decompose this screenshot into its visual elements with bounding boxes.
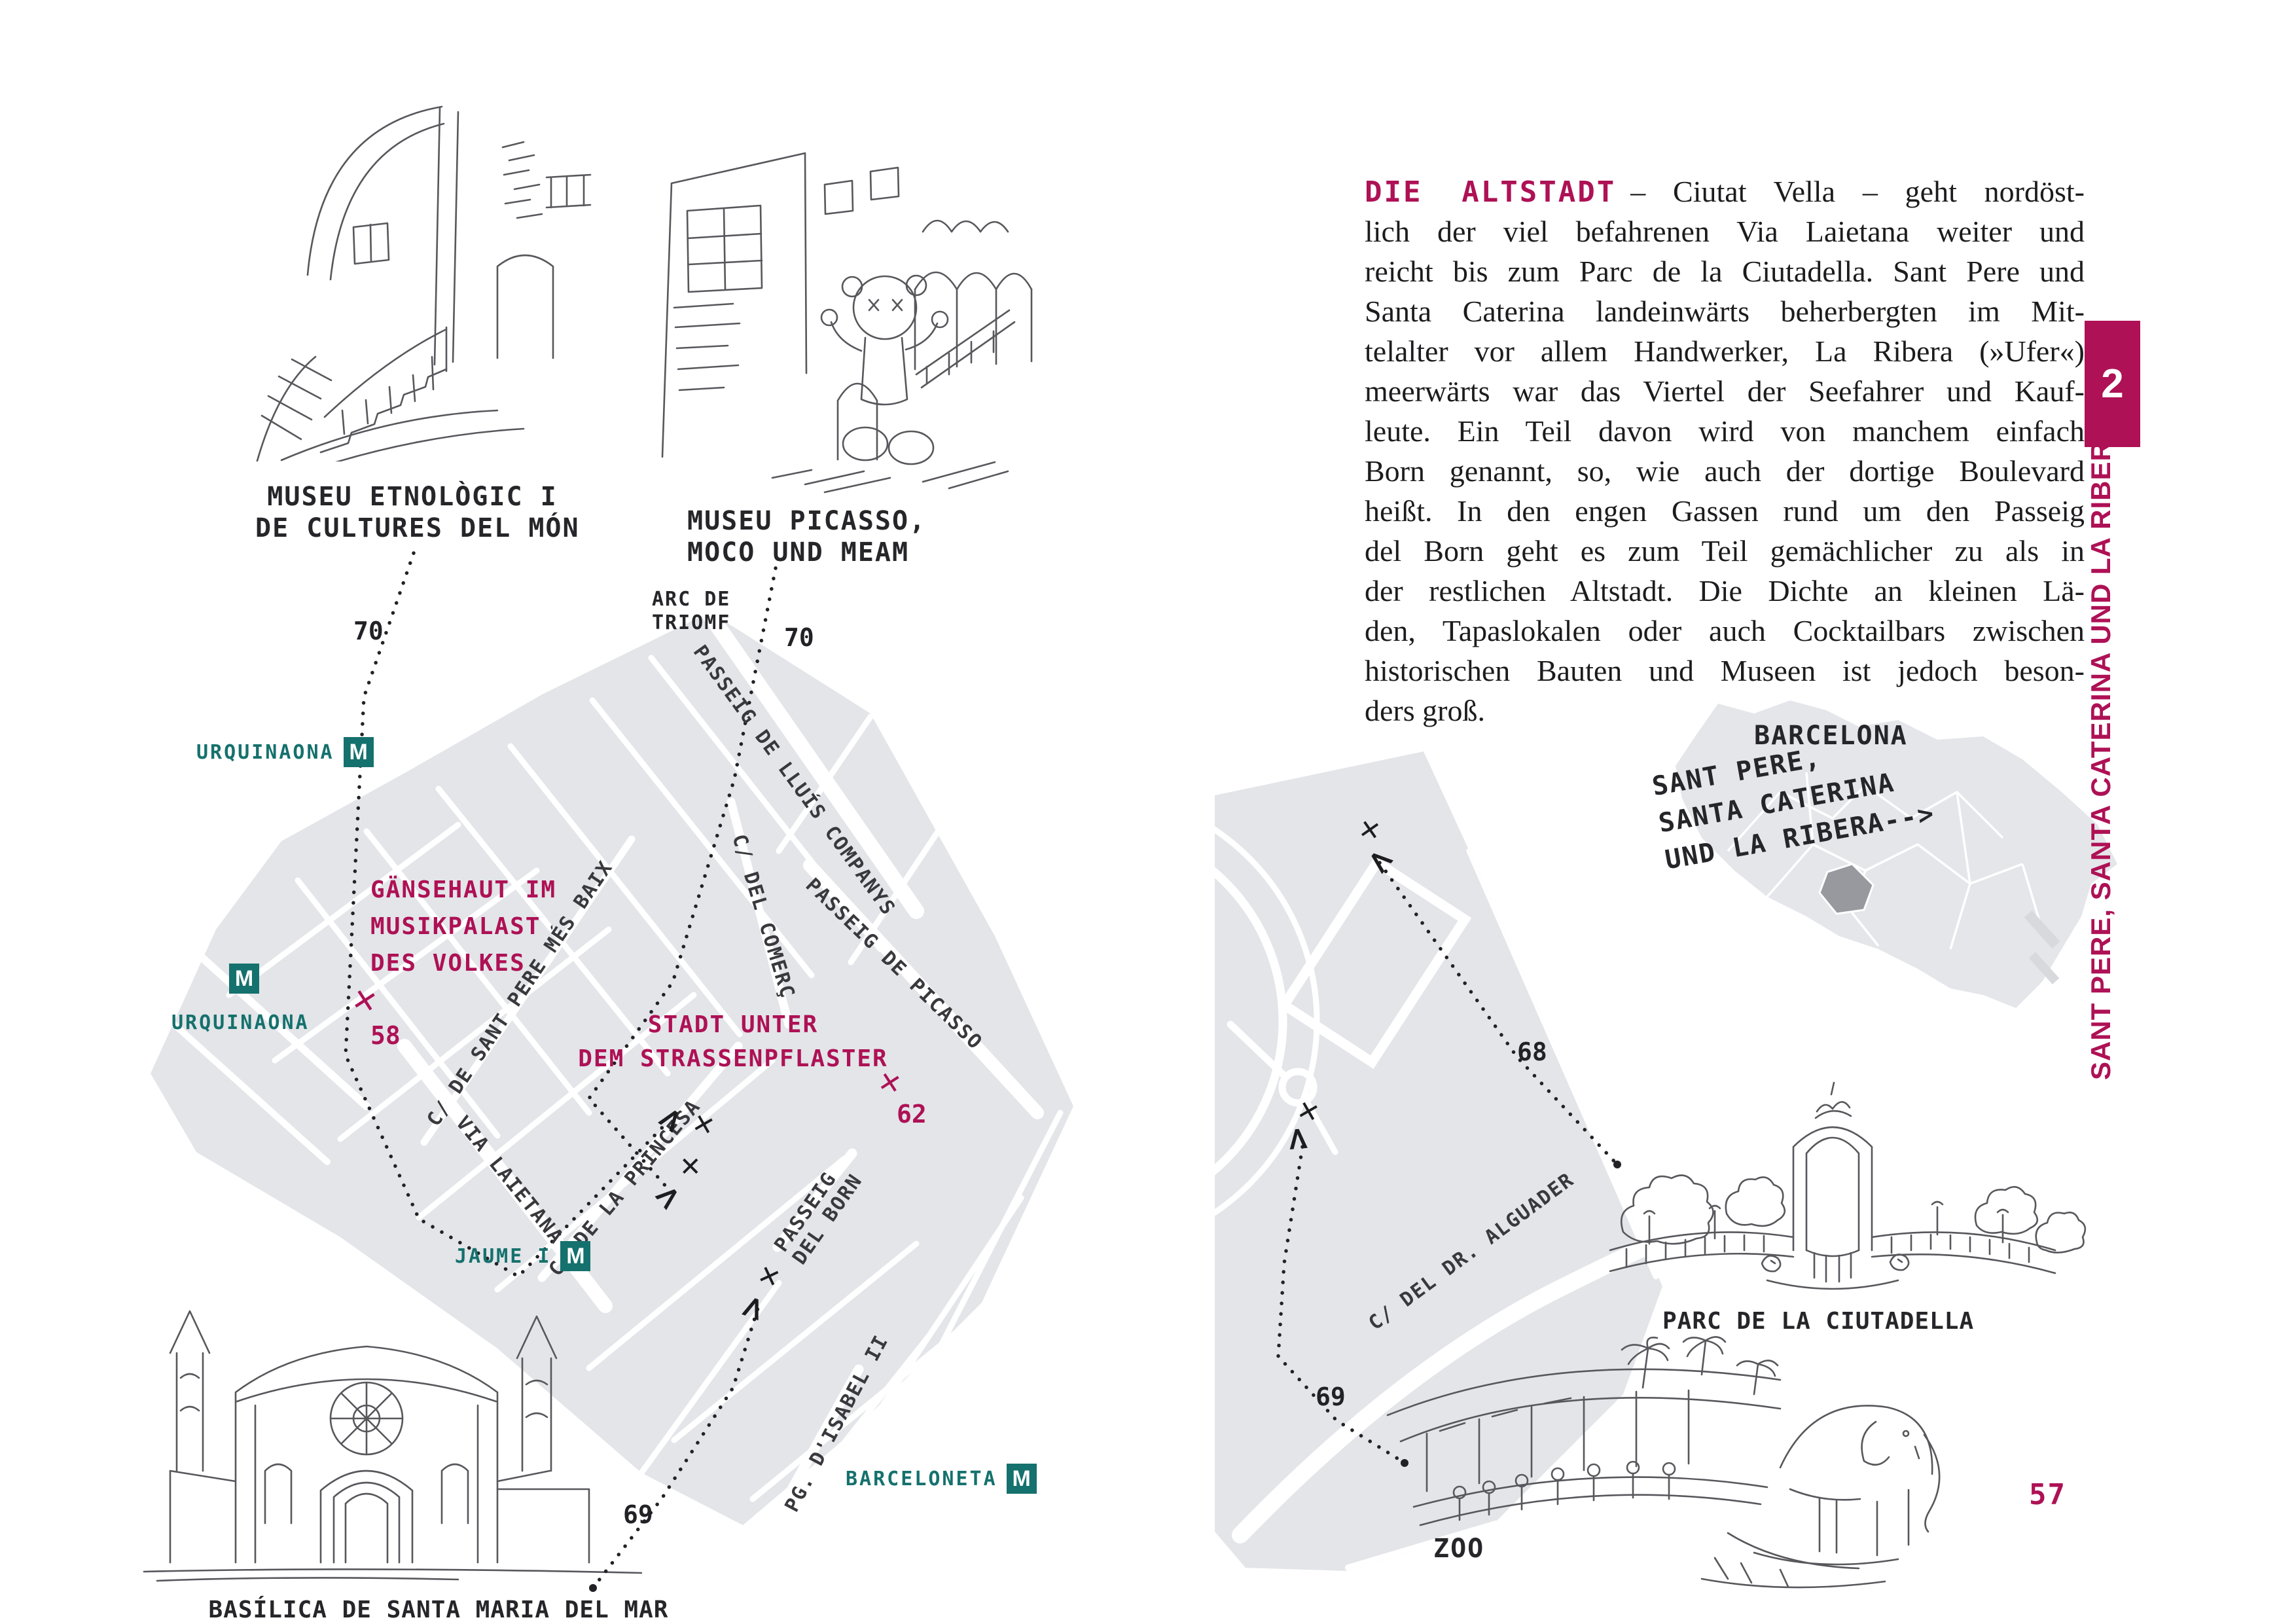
- label-arc-de-triomf: ARC DE TRIOMF: [652, 588, 730, 635]
- caption-line: DE CULTURES DEL MÓN: [255, 513, 569, 544]
- chapter-vertical-title: SANT PERE, SANTA CATERINA UND LA RIBERA: [2085, 452, 2117, 1080]
- caption-museu-etnologic: MUSEU ETNOLÒGIC I DE CULTURES DEL MÓN: [255, 481, 569, 544]
- poi-line: DEM STRASSENPFLASTER: [569, 1042, 897, 1076]
- poi-line: MUSIKPALAST: [370, 909, 556, 945]
- article-line: historischen Bauten und Museen ist jedoc…: [1365, 651, 2085, 691]
- caption-line: MUSEU PICASSO,: [687, 505, 903, 537]
- chapter-number: 2: [2101, 361, 2123, 407]
- caption-line: MOCO UND MEAM: [687, 537, 903, 568]
- article-line: DIE ALTSTADT– Ciutat Vella – geht nordös…: [1365, 171, 2085, 211]
- article-line: leute. Ein Teil davon wird von manchem e…: [1365, 411, 2085, 451]
- tour-number-zoo: 69: [1316, 1382, 1346, 1411]
- poi-strassenpflaster: STADT UNTER DEM STRASSENPFLASTER: [569, 1008, 897, 1076]
- article-line: der restlichen Altstadt. Die Dichte an k…: [1365, 571, 2085, 611]
- caption-basilica: BASÍLICA DE SANTA MARIA DEL MAR: [196, 1595, 681, 1624]
- caption-line: MUSEU ETNOLÒGIC I: [255, 481, 569, 513]
- caption-museu-picasso: MUSEU PICASSO, MOCO UND MEAM: [687, 505, 903, 568]
- metro-jaume-i: JAUME I M: [455, 1241, 590, 1271]
- article-line-text: – Ciutat Vella – geht nordöst-: [1630, 175, 2085, 208]
- metro-urquinaona-top: URQUINAONA M: [196, 737, 374, 767]
- metro-urquinaona-left: URQUINAONA: [171, 1011, 310, 1034]
- metro-barceloneta: BARCELONETA M: [846, 1464, 1037, 1494]
- label-line: ARC DE: [652, 588, 730, 611]
- article-line: del Born geht es zum Teil gemächlicher z…: [1365, 531, 2085, 571]
- article-line: reicht bis zum Parc de la Ciutadella. Sa…: [1365, 251, 2085, 291]
- label-line: TRIOMF: [652, 611, 730, 635]
- article-line: Born genannt, so, wie auch der dortige B…: [1365, 451, 2085, 491]
- metro-icon: M: [1007, 1464, 1037, 1494]
- page-number: 57: [2029, 1478, 2066, 1511]
- article-line: ders groß.: [1365, 691, 2085, 731]
- poi-line: GÄNSEHAUT IM: [370, 872, 556, 909]
- map-x-marker: ✕: [679, 1152, 702, 1182]
- article-lead-in: DIE ALTSTADT: [1365, 175, 1630, 209]
- caption-zoo: ZOO: [1433, 1533, 1484, 1564]
- article-line: den, Tapaslokalen oder auch Cocktailbars…: [1365, 611, 2085, 651]
- tour-number-basilica: 69: [623, 1500, 653, 1529]
- caption-parc-ciutadella: PARC DE LA CIUTADELLA: [1662, 1306, 1964, 1337]
- metro-icon: M: [344, 737, 374, 767]
- arrowhead-icon: >: [1278, 1125, 1316, 1154]
- poi-line: STADT UNTER: [569, 1008, 897, 1042]
- metro-station-name: JAUME I: [455, 1245, 551, 1268]
- article-line: Santa Caterina landeinwärts beherbergten…: [1365, 291, 2085, 331]
- article-line: telalter vor allem Handwerker, La Ribera…: [1365, 331, 2085, 371]
- tour-number-picasso: 70: [784, 623, 814, 652]
- tour-number-etnologic: 70: [353, 617, 384, 645]
- article-line: lich der viel befahrenen Via Laietana we…: [1365, 211, 2085, 251]
- metro-icon: M: [560, 1241, 590, 1271]
- article-line: heißt. In den engen Gassen rund um den P…: [1365, 491, 2085, 531]
- article-line: meerwärts war das Viertel der Seefahrer …: [1365, 371, 2085, 411]
- tour-number-musikpalast: 58: [370, 1021, 401, 1050]
- metro-station-name: BARCELONETA: [846, 1468, 997, 1490]
- article-text: DIE ALTSTADT– Ciutat Vella – geht nordös…: [1365, 171, 2085, 731]
- metro-icon: M: [229, 964, 259, 994]
- book-spread: MUSEU ETNOLÒGIC I DE CULTURES DEL MÓN 70…: [0, 0, 2296, 1624]
- tour-number-strassenpflaster: 62: [897, 1100, 927, 1128]
- tour-number-ciutadella: 68: [1517, 1038, 1547, 1066]
- poi-line: DES VOLKES: [370, 945, 556, 982]
- metro-station-name: URQUINAONA: [196, 741, 334, 764]
- poi-musikpalast: GÄNSEHAUT IM MUSIKPALAST DES VOLKES: [370, 872, 556, 982]
